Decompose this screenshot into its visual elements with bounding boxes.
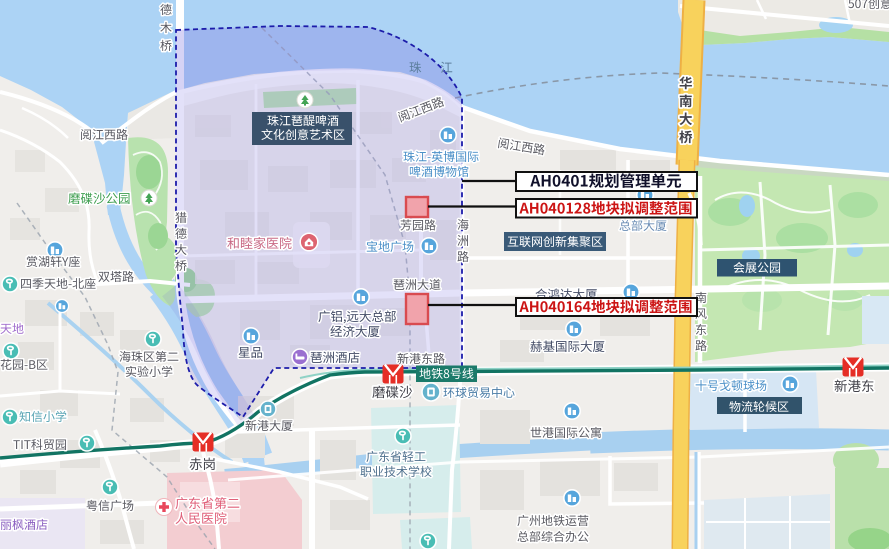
svg-text:东: 东 (695, 321, 707, 338)
svg-text:琶洲大道: 琶洲大道 (393, 276, 441, 293)
svg-text:德: 德 (160, 1, 172, 18)
svg-text:粤信广场: 粤信广场 (86, 497, 134, 514)
svg-text:桥: 桥 (160, 37, 172, 54)
svg-text:职业技术学校: 职业技术学校 (360, 463, 432, 480)
svg-text:文化创意艺术区: 文化创意艺术区 (261, 126, 345, 143)
svg-text:南: 南 (679, 90, 693, 110)
svg-text:互联网创新集聚区: 互联网创新集聚区 (507, 233, 603, 250)
svg-text:会展公园: 会展公园 (733, 259, 781, 276)
svg-text:丽枫酒店: 丽枫酒店 (0, 516, 48, 533)
svg-text:路: 路 (457, 248, 469, 265)
svg-text:AH040128地块拟调整范围: AH040128地块拟调整范围 (518, 198, 692, 219)
svg-text:新港东: 新港东 (834, 375, 875, 395)
svg-text:啤酒博物馆: 啤酒博物馆 (409, 163, 469, 180)
svg-text:双塔路: 双塔路 (98, 268, 134, 285)
svg-text:十号戈顿球场: 十号戈顿球场 (695, 377, 767, 394)
svg-text:大: 大 (175, 241, 187, 258)
svg-text:赏湖轩Y座: 赏湖轩Y座 (26, 253, 80, 270)
svg-text:实验小学: 实验小学 (125, 363, 173, 380)
svg-text:木: 木 (160, 19, 172, 36)
svg-text:507创意园: 507创意园 (848, 0, 889, 12)
svg-text:AH0401规划管理单元: AH0401规划管理单元 (529, 170, 682, 192)
svg-text:四季天地-北座: 四季天地-北座 (20, 275, 96, 292)
svg-text:广州地铁运营: 广州地铁运营 (517, 512, 589, 529)
svg-text:华: 华 (679, 72, 693, 92)
svg-text:花园-B区: 花园-B区 (0, 356, 48, 373)
svg-text:AH040164地块拟调整范围: AH040164地块拟调整范围 (518, 296, 692, 317)
svg-text:海: 海 (457, 216, 469, 233)
svg-text:TIT科贸园: TIT科贸园 (13, 436, 67, 453)
svg-text:新港大厦: 新港大厦 (245, 417, 293, 434)
svg-text:路: 路 (695, 337, 707, 354)
svg-text:大: 大 (679, 108, 693, 128)
svg-text:总部综合办公: 总部综合办公 (517, 528, 589, 545)
svg-text:世港国际公寓: 世港国际公寓 (530, 424, 602, 441)
svg-text:桥: 桥 (679, 126, 693, 146)
svg-text:琶洲酒店: 琶洲酒店 (310, 347, 360, 366)
svg-text:珠 江: 珠 江 (409, 57, 461, 76)
svg-text:地铁8号线: 地铁8号线 (419, 365, 474, 382)
svg-text:经济大厦: 经济大厦 (330, 321, 380, 340)
svg-text:桥: 桥 (175, 257, 187, 274)
svg-text:总部大厦: 总部大厦 (619, 217, 667, 234)
svg-text:物流轮候区: 物流轮候区 (729, 398, 789, 415)
svg-text:磨碟沙公园: 磨碟沙公园 (68, 188, 131, 207)
svg-text:阅江西路: 阅江西路 (80, 126, 128, 143)
svg-text:洲: 洲 (457, 232, 469, 249)
svg-text:和睦家医院: 和睦家医院 (227, 233, 292, 252)
svg-text:宝地广场: 宝地广场 (366, 238, 414, 255)
svg-text:知信小学: 知信小学 (19, 408, 67, 425)
svg-text:赤岗: 赤岗 (189, 453, 216, 473)
svg-text:环球贸易中心: 环球贸易中心 (443, 384, 515, 401)
svg-text:天地: 天地 (0, 320, 24, 337)
svg-text:德: 德 (175, 225, 187, 242)
svg-text:赫基国际大厦: 赫基国际大厦 (530, 336, 605, 355)
svg-text:磨碟沙: 磨碟沙 (372, 381, 413, 401)
svg-text:猎: 猎 (175, 209, 187, 226)
svg-text:星品: 星品 (238, 342, 263, 361)
svg-text:芳园路: 芳园路 (400, 217, 436, 234)
svg-text:人民医院: 人民医院 (175, 508, 227, 527)
